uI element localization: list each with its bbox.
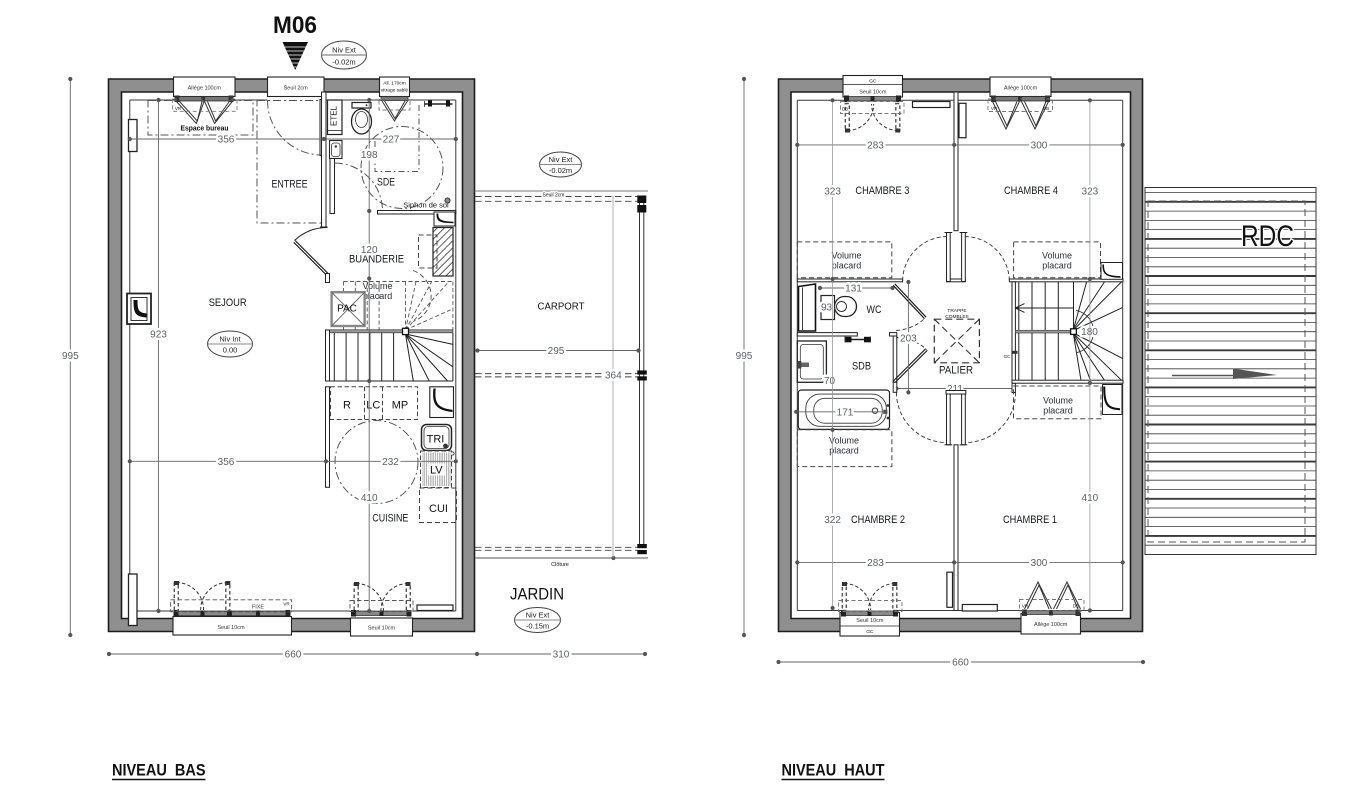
- svg-text:RDC: RDC: [1241, 220, 1294, 253]
- svg-text:VR: VR: [175, 106, 182, 111]
- svg-text:227: 227: [383, 135, 400, 146]
- svg-text:Niv Ext: Niv Ext: [549, 155, 574, 164]
- svg-text:Seuil 2cm: Seuil 2cm: [284, 86, 309, 92]
- svg-text:placard: placard: [832, 261, 862, 271]
- svg-text:Siphon de sol: Siphon de sol: [403, 201, 449, 210]
- svg-text:CHAMBRE 1: CHAMBRE 1: [1003, 514, 1057, 526]
- svg-text:310: 310: [553, 650, 570, 661]
- svg-text:CHAMBRE 3: CHAMBRE 3: [855, 185, 909, 197]
- svg-text:Niv Ext: Niv Ext: [332, 46, 357, 55]
- svg-text:SEJOUR: SEJOUR: [209, 297, 247, 309]
- svg-text:322: 322: [824, 515, 841, 526]
- svg-text:Seuil 10cm: Seuil 10cm: [859, 90, 887, 96]
- svg-text:CARPORT: CARPORT: [538, 302, 585, 313]
- svg-text:TRI: TRI: [427, 434, 445, 446]
- svg-text:TRAPPE: TRAPPE: [947, 308, 966, 314]
- svg-text:CUISINE: CUISINE: [372, 513, 408, 525]
- svg-text:Volume: Volume: [1043, 396, 1073, 406]
- svg-text:995: 995: [62, 351, 79, 362]
- svg-text:Allége 100cm: Allége 100cm: [1004, 86, 1038, 92]
- svg-text:GC: GC: [869, 79, 877, 85]
- svg-text:MP: MP: [392, 400, 409, 412]
- svg-text:995: 995: [736, 351, 753, 362]
- svg-text:120: 120: [361, 245, 378, 256]
- svg-text:-0.02m: -0.02m: [332, 58, 355, 67]
- svg-text:0.00: 0.00: [223, 346, 238, 355]
- svg-text:ETEL: ETEL: [330, 105, 339, 126]
- svg-text:LC: LC: [366, 400, 380, 412]
- svg-text:300: 300: [1031, 141, 1048, 152]
- svg-text:323: 323: [1082, 187, 1099, 198]
- svg-text:-0.02m: -0.02m: [549, 166, 572, 175]
- svg-text:93: 93: [821, 303, 833, 314]
- svg-text:Espace bureau: Espace bureau: [181, 124, 229, 133]
- svg-text:Volume: Volume: [829, 436, 859, 446]
- svg-text:placard: placard: [1043, 406, 1073, 416]
- svg-text:DB: DB: [1073, 604, 1079, 609]
- svg-text:198: 198: [361, 150, 378, 161]
- svg-text:660: 660: [952, 658, 969, 669]
- svg-text:placard: placard: [829, 446, 859, 456]
- svg-text:LV: LV: [430, 465, 443, 477]
- svg-text:NIVEAU BAS: NIVEAU BAS: [112, 761, 206, 780]
- svg-text:300: 300: [1031, 558, 1048, 569]
- svg-text:131: 131: [845, 284, 862, 295]
- svg-text:SDB: SDB: [852, 361, 871, 373]
- svg-text:CUI: CUI: [429, 503, 448, 515]
- svg-text:CHAMBRE 2: CHAMBRE 2: [851, 514, 905, 526]
- svg-text:Seuil 10cm: Seuil 10cm: [217, 625, 245, 631]
- svg-text:660: 660: [285, 650, 302, 661]
- svg-text:Allége 100cm: Allége 100cm: [188, 86, 222, 92]
- svg-text:171: 171: [837, 407, 854, 418]
- svg-text:364: 364: [605, 371, 622, 382]
- svg-text:NIVEAU HAUT: NIVEAU HAUT: [782, 761, 886, 780]
- svg-text:GC: GC: [866, 629, 874, 635]
- svg-text:Seuil 10cm: Seuil 10cm: [368, 626, 396, 632]
- svg-text:JARDIN: JARDIN: [510, 585, 564, 604]
- svg-text:COMBLES: COMBLES: [945, 314, 968, 320]
- svg-text:DB: DB: [842, 107, 848, 112]
- svg-text:WC: WC: [867, 304, 882, 316]
- svg-text:DB: DB: [1043, 106, 1049, 111]
- svg-text:Niv Ext: Niv Ext: [526, 611, 551, 620]
- svg-text:placard: placard: [1042, 261, 1072, 271]
- svg-text:232: 232: [382, 457, 399, 468]
- svg-text:Clôture: Clôture: [551, 562, 569, 568]
- svg-text:410: 410: [1082, 493, 1099, 504]
- svg-text:ENTREE: ENTREE: [272, 179, 308, 191]
- svg-text:410: 410: [361, 493, 378, 504]
- svg-text:Volume: Volume: [1042, 251, 1072, 261]
- svg-text:323: 323: [824, 187, 841, 198]
- svg-text:CHAMBRE 4: CHAMBRE 4: [1004, 185, 1058, 197]
- svg-text:VR: VR: [1022, 604, 1029, 609]
- svg-text:Seuil 2cm: Seuil 2cm: [543, 193, 565, 199]
- svg-text:295: 295: [548, 346, 565, 357]
- svg-text:70: 70: [824, 376, 836, 387]
- svg-text:283: 283: [867, 558, 884, 569]
- svg-text:923: 923: [150, 330, 167, 341]
- svg-text:PALIER: PALIER: [939, 365, 973, 377]
- svg-text:VR: VR: [991, 106, 998, 111]
- svg-text:Volume: Volume: [831, 251, 861, 261]
- svg-text:All. 170cm: All. 170cm: [383, 81, 405, 87]
- svg-text:283: 283: [867, 141, 884, 152]
- svg-text:203: 203: [900, 334, 917, 345]
- svg-text:FIXE: FIXE: [252, 605, 265, 611]
- svg-text:Niv Int: Niv Int: [219, 335, 241, 344]
- svg-text:vitrage sablé: vitrage sablé: [381, 88, 409, 94]
- svg-text:GC: GC: [1004, 354, 1012, 359]
- svg-text:356: 356: [218, 135, 235, 146]
- svg-text:Seuil 10cm: Seuil 10cm: [856, 618, 884, 624]
- svg-text:PAC: PAC: [337, 304, 357, 315]
- svg-text:M06: M06: [273, 12, 317, 39]
- svg-text:VR: VR: [283, 602, 290, 607]
- svg-text:R: R: [343, 400, 351, 412]
- svg-text:SDE: SDE: [377, 177, 395, 189]
- svg-text:356: 356: [218, 457, 235, 468]
- svg-text:-0.15m: -0.15m: [526, 622, 549, 631]
- svg-text:Allège 100cm: Allège 100cm: [1034, 622, 1068, 628]
